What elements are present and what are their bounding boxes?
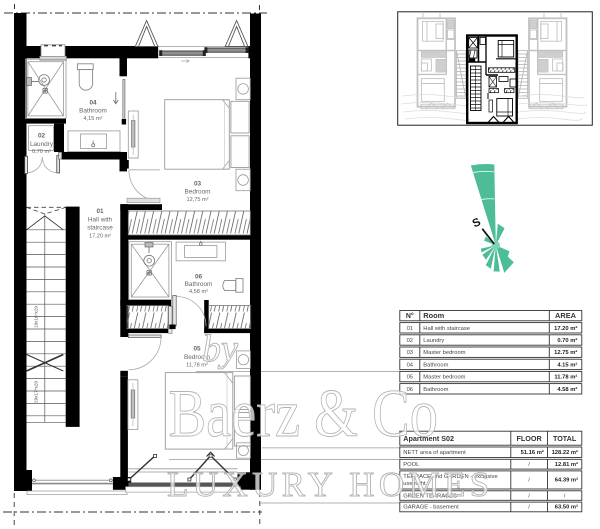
svg-text:AREA: AREA xyxy=(555,311,577,320)
svg-text:04: 04 xyxy=(407,362,414,368)
svg-text:63.50 m²: 63.50 m² xyxy=(555,504,578,511)
svg-text:12.81 m²: 12.81 m² xyxy=(555,461,578,468)
svg-text:Bathroom: Bathroom xyxy=(185,281,213,288)
svg-text:Laundry: Laundry xyxy=(423,338,444,344)
svg-text:Laundry: Laundry xyxy=(30,141,54,148)
svg-text:01: 01 xyxy=(407,326,413,332)
svg-text:Hall with staircase: Hall with staircase xyxy=(423,326,470,332)
svg-text:04: 04 xyxy=(89,100,97,107)
svg-text:02: 02 xyxy=(407,338,413,344)
svg-text:05: 05 xyxy=(193,346,201,353)
svg-text:03: 03 xyxy=(194,181,202,188)
svg-text:TOTAL: TOTAL xyxy=(553,434,577,443)
svg-text:0,70 m²: 0,70 m² xyxy=(32,149,51,155)
svg-text:Bathroom: Bathroom xyxy=(423,362,448,368)
svg-text:Hall with: Hall with xyxy=(88,217,113,224)
svg-text:17.20 m²: 17.20 m² xyxy=(554,325,577,332)
svg-text:128.22 m²: 128.22 m² xyxy=(552,449,578,456)
svg-text:by: by xyxy=(202,328,238,370)
svg-text:03: 03 xyxy=(407,350,413,356)
svg-text:06: 06 xyxy=(195,274,203,281)
svg-text:LUXURY HOMES: LUXURY HOMES xyxy=(167,465,494,504)
svg-text:29x17⁴x29: 29x17⁴x29 xyxy=(34,381,39,403)
svg-text:Master bedroom: Master bedroom xyxy=(423,350,465,356)
svg-text:12,75 m²: 12,75 m² xyxy=(186,197,208,203)
svg-text:staircase: staircase xyxy=(87,225,113,232)
svg-text:Bedroom: Bedroom xyxy=(185,189,211,196)
svg-text:02: 02 xyxy=(38,133,46,140)
svg-text:FLOOR: FLOOR xyxy=(517,434,543,443)
svg-text:12.75 m²: 12.75 m² xyxy=(554,349,577,356)
svg-text:01: 01 xyxy=(96,208,104,215)
svg-text:11.78 m²: 11.78 m² xyxy=(554,374,577,381)
svg-text:17,20 m²: 17,20 m² xyxy=(89,234,111,240)
svg-text:4.58 m²: 4.58 m² xyxy=(557,386,577,393)
svg-text:Bathroom: Bathroom xyxy=(79,108,107,115)
svg-text:19x16⁴x29: 19x16⁴x29 xyxy=(34,306,39,328)
svg-text:Baerz & Co: Baerz & Co xyxy=(169,375,438,451)
svg-text:Room: Room xyxy=(423,311,444,320)
svg-text:4.15 m²: 4.15 m² xyxy=(557,361,577,368)
svg-text:0.70 m²: 0.70 m² xyxy=(557,337,577,344)
svg-text:GARAGE - basement: GARAGE - basement xyxy=(403,505,459,511)
svg-text:64.39 m²: 64.39 m² xyxy=(555,477,578,484)
svg-text:4,15 m²: 4,15 m² xyxy=(84,116,103,122)
svg-text:4,58 m²: 4,58 m² xyxy=(189,289,208,295)
svg-text:N°: N° xyxy=(406,312,414,320)
svg-text:51.16 m²: 51.16 m² xyxy=(521,449,544,456)
